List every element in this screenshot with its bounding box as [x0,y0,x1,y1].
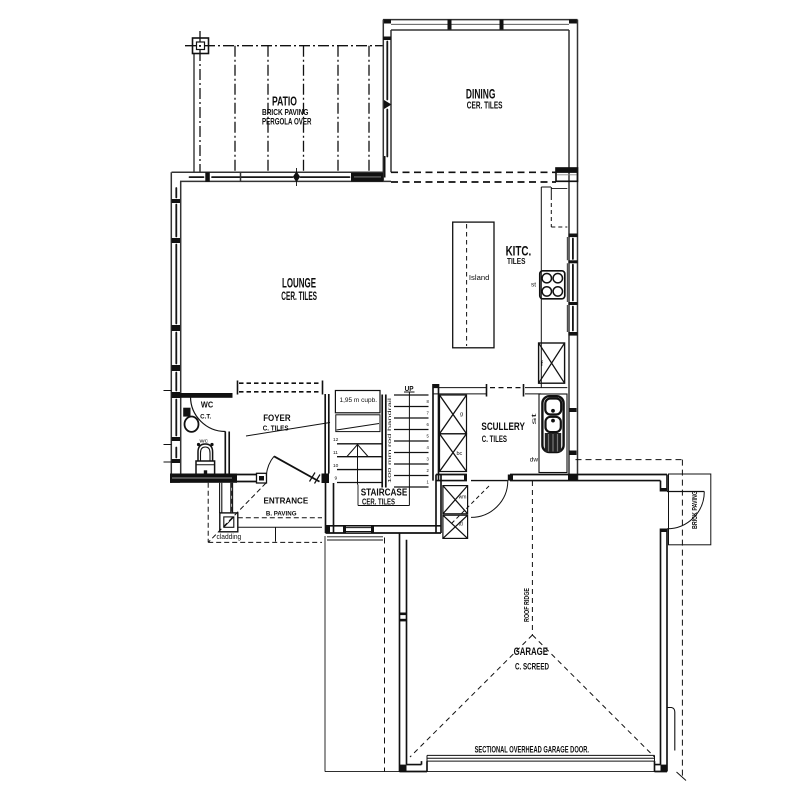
svg-text:C. TILES: C. TILES [263,423,289,432]
svg-text:UP: UP [405,386,414,393]
svg-text:wm: wm [459,494,467,500]
svg-text:BRICK PAVING: BRICK PAVING [690,491,699,529]
svg-text:PATIO: PATIO [272,93,297,108]
svg-text:st: st [532,413,538,425]
svg-text:9: 9 [335,476,338,482]
svg-text:f: f [541,361,543,368]
svg-text:FOYER: FOYER [263,413,291,423]
svg-text:C. TILES: C. TILES [482,434,507,444]
svg-text:WC: WC [201,400,213,410]
svg-text:ENTRANCE: ENTRANCE [264,496,309,506]
svg-text:100 mm rod handrail: 100 mm rod handrail [387,398,392,483]
svg-text:10: 10 [333,463,339,469]
svg-text:st: st [531,282,536,289]
svg-text:cladding: cladding [217,532,242,541]
svg-text:CER. TILES: CER. TILES [467,99,503,111]
svg-text:CER. TILES: CER. TILES [281,291,317,303]
svg-text:bc: bc [457,451,463,457]
svg-text:CER. TILES: CER. TILES [362,497,395,506]
svg-text:g: g [460,412,463,418]
svg-text:TILES: TILES [507,257,526,266]
svg-text:GARAGE: GARAGE [514,646,548,658]
svg-text:td: td [459,521,463,527]
svg-text:12: 12 [333,437,339,443]
svg-text:wc: wc [200,438,209,444]
svg-text:LOUNGE: LOUNGE [282,276,316,291]
svg-text:ROOF RIDGE: ROOF RIDGE [522,588,531,622]
svg-text:11: 11 [333,450,338,456]
svg-text:PERGOLA OVER: PERGOLA OVER [262,117,312,127]
svg-text:SCULLERY: SCULLERY [481,421,525,433]
svg-text:dw: dw [530,456,539,463]
svg-text:B. PAVING: B. PAVING [266,510,297,517]
svg-text:SECTIONAL OVERHEAD GARAGE DOOR: SECTIONAL OVERHEAD GARAGE DOOR. [475,745,589,756]
svg-text:C. SCREED: C. SCREED [515,662,549,673]
svg-text:Island: Island [469,275,490,282]
svg-text:1,95 m cupb.: 1,95 m cupb. [340,397,378,404]
svg-text:C.T.: C.T. [200,414,211,420]
